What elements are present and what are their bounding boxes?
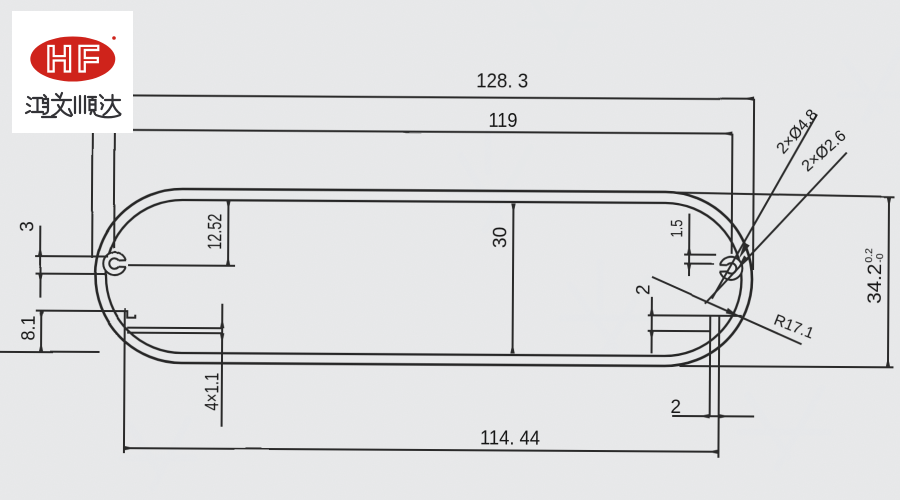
svg-text:3: 3 [17,221,38,232]
svg-text:2: 2 [670,397,681,418]
svg-text:128. 3: 128. 3 [476,70,528,92]
svg-text:1.5: 1.5 [668,219,686,237]
svg-text:-0: -0 [874,253,886,263]
svg-text:8.1: 8.1 [19,315,40,340]
svg-text:12.52: 12.52 [205,214,226,250]
svg-text:HF: HF [46,39,104,80]
svg-text:34.2: 34.2 [865,264,886,304]
svg-text:30: 30 [490,227,511,248]
svg-text:114. 44: 114. 44 [480,427,540,449]
svg-text:4×1.1: 4×1.1 [202,373,223,411]
svg-text:2: 2 [633,285,654,296]
svg-text:119: 119 [488,110,517,132]
